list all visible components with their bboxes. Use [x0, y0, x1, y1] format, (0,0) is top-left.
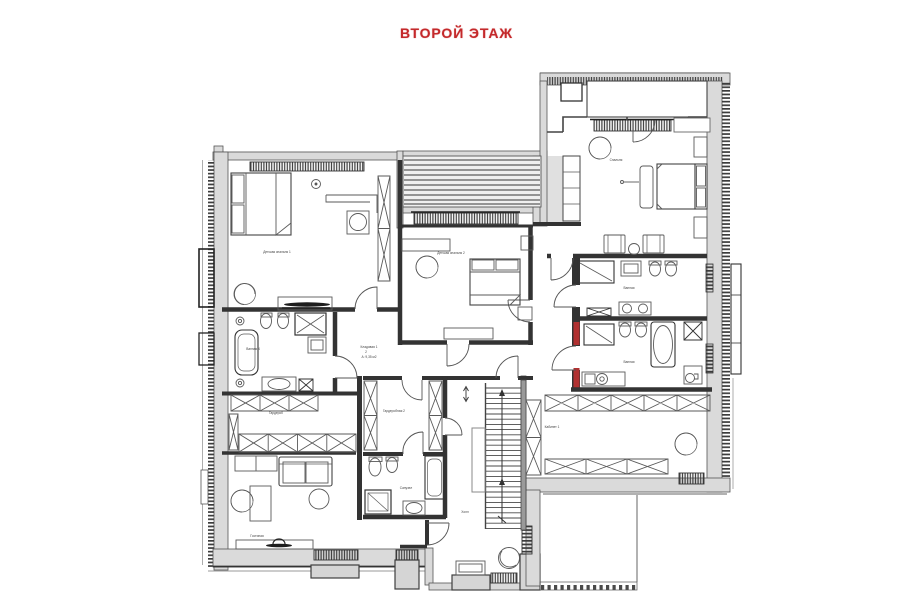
svg-text:Спальня: Спальня [610, 158, 623, 162]
svg-text:Гардеробная 2: Гардеробная 2 [383, 409, 405, 413]
svg-text:Детская спальня 1: Детская спальня 1 [263, 250, 291, 254]
svg-text:Кабинет 1: Кабинет 1 [545, 425, 560, 429]
svg-text:Санузел: Санузел [400, 486, 413, 490]
svg-text:Детская спальня 2: Детская спальня 2 [437, 251, 465, 255]
svg-text:Ванная 4: Ванная 4 [246, 347, 260, 351]
svg-text:Гардероб: Гардероб [269, 411, 283, 415]
svg-text:2: 2 [365, 350, 367, 354]
svg-text:А: 9,35 м2: А: 9,35 м2 [362, 355, 377, 359]
svg-text:Гостиная: Гостиная [250, 534, 264, 538]
svg-text:Ванная: Ванная [624, 286, 635, 290]
svg-text:Холл: Холл [461, 510, 469, 514]
svg-text:Ванная: Ванная [624, 360, 635, 364]
svg-text:Кладовая 1: Кладовая 1 [361, 345, 378, 349]
